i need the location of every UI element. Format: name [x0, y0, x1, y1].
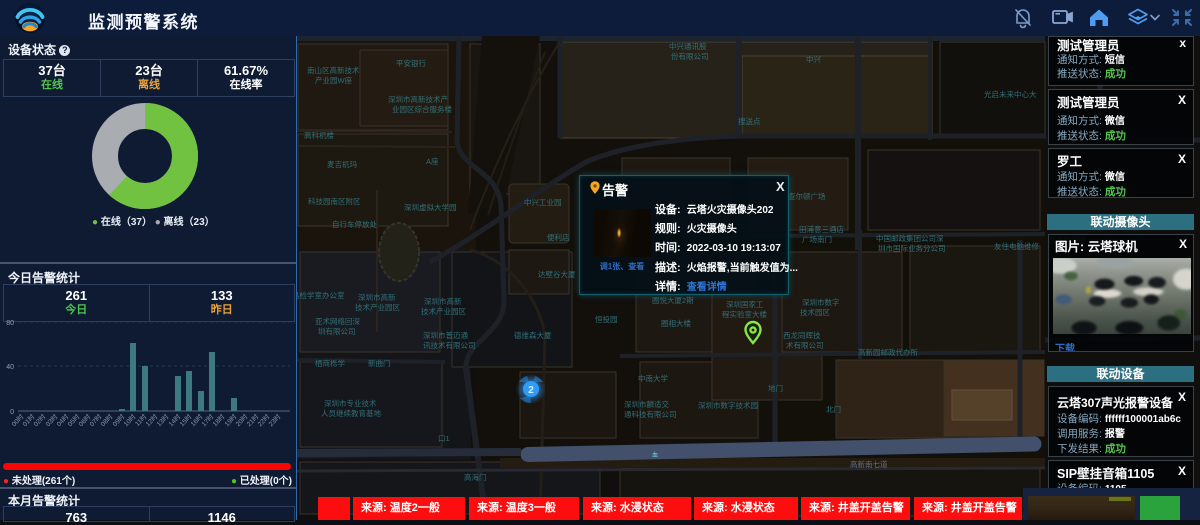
svg-text:高新南七道: 高新南七道 — [850, 459, 888, 469]
svg-text:光启未来中心大: 光启未来中心大 — [984, 89, 1037, 99]
svg-text:中国邮政集团公司深: 中国邮政集团公司深 — [876, 233, 944, 243]
svg-text:南山区高新技术: 南山区高新技术 — [307, 65, 360, 75]
svg-text:达壁谷大厦: 达壁谷大厦 — [538, 269, 576, 279]
svg-text:北门: 北门 — [826, 405, 841, 414]
svg-text:田浦意三酒店: 田浦意三酒店 — [799, 224, 844, 234]
svg-text:中兴: 中兴 — [806, 54, 821, 64]
svg-text:深圳市数字: 深圳市数字 — [802, 297, 840, 307]
svg-text:栖商栎学: 栖商栎学 — [315, 358, 345, 368]
svg-text:搜送点: 搜送点 — [738, 116, 761, 126]
svg-text:深圳市数字技术园: 深圳市数字技术园 — [698, 400, 758, 410]
svg-text:圈相大楼: 圈相大楼 — [661, 318, 691, 328]
svg-text:亚术网络回深: 亚术网络回深 — [315, 316, 360, 326]
svg-text:技术园区: 技术园区 — [800, 307, 830, 317]
svg-text:高新园邮政代办所: 高新园邮政代办所 — [858, 347, 918, 357]
svg-text:深圳虚拟大学园: 深圳虚拟大学园 — [404, 202, 457, 212]
svg-text:友住电脑维修: 友住电脑维修 — [994, 241, 1039, 251]
svg-text:广场南门: 广场南门 — [802, 234, 832, 244]
svg-text:高科机楼: 高科机楼 — [304, 130, 334, 140]
svg-text:便利店: 便利店 — [547, 232, 570, 242]
svg-text:技术产业园区: 技术产业园区 — [421, 306, 466, 316]
svg-text:口1: 口1 — [438, 434, 450, 443]
svg-text:中南大学: 中南大学 — [638, 373, 668, 383]
svg-text:德维森大厦: 德维森大厦 — [514, 330, 552, 340]
svg-text:地门: 地门 — [768, 383, 783, 393]
svg-text:80: 80 — [6, 320, 14, 327]
svg-text:中兴工业园: 中兴工业园 — [524, 197, 562, 207]
svg-text:圳市国际业务分公司: 圳市国际业务分公司 — [878, 243, 946, 253]
svg-text:昌检学室办公室: 昌检学室办公室 — [292, 290, 345, 300]
svg-text:高海门: 高海门 — [464, 472, 487, 482]
svg-text:平安银行: 平安银行 — [396, 58, 426, 68]
svg-text:2: 2 — [528, 385, 534, 396]
svg-text:技术产业园区: 技术产业园区 — [355, 302, 400, 312]
svg-text:讯技术有限公司: 讯技术有限公司 — [423, 340, 476, 350]
svg-text:麦吉机玛: 麦吉机玛 — [327, 159, 357, 169]
svg-text:深圳市高新技术产: 深圳市高新技术产 — [388, 94, 448, 104]
svg-text:深圳市高新: 深圳市高新 — [424, 296, 462, 306]
svg-text:圳有限公司: 圳有限公司 — [318, 326, 356, 336]
svg-text:新曲门: 新曲门 — [368, 358, 391, 368]
svg-text:自行车停放处: 自行车停放处 — [332, 219, 377, 229]
svg-text:术有限公司: 术有限公司 — [786, 340, 824, 350]
svg-text:40: 40 — [6, 364, 14, 371]
svg-text:深圳市专业技术: 深圳市专业技术 — [324, 398, 377, 408]
svg-text:0: 0 — [10, 409, 14, 416]
svg-text:中兴通讯股: 中兴通讯股 — [669, 41, 707, 51]
svg-text:份有限公司: 份有限公司 — [671, 51, 709, 61]
svg-text:人员继续教育基地: 人员继续教育基地 — [321, 408, 381, 418]
svg-text:恒投园: 恒投园 — [595, 314, 618, 324]
svg-text:A座: A座 — [426, 156, 439, 166]
svg-text:通科技有限公司: 通科技有限公司 — [624, 409, 677, 419]
svg-text:深圳市麟适交: 深圳市麟适交 — [624, 399, 669, 409]
svg-text:业园区综合服务楼: 业园区综合服务楼 — [392, 104, 452, 114]
svg-text:程实验室大楼: 程实验室大楼 — [722, 309, 767, 319]
svg-text:深圳市高新: 深圳市高新 — [358, 292, 396, 302]
svg-text:查尔顿广场: 查尔顿广场 — [788, 191, 826, 201]
svg-text:深圳国家工: 深圳国家工 — [726, 299, 764, 309]
svg-text:西龙同辉技: 西龙同辉技 — [783, 330, 821, 340]
svg-text:科技园南区附区: 科技园南区附区 — [308, 196, 361, 206]
svg-text:深圳市普迈通: 深圳市普迈通 — [423, 330, 468, 340]
svg-text:产业园W座: 产业园W座 — [315, 75, 353, 85]
